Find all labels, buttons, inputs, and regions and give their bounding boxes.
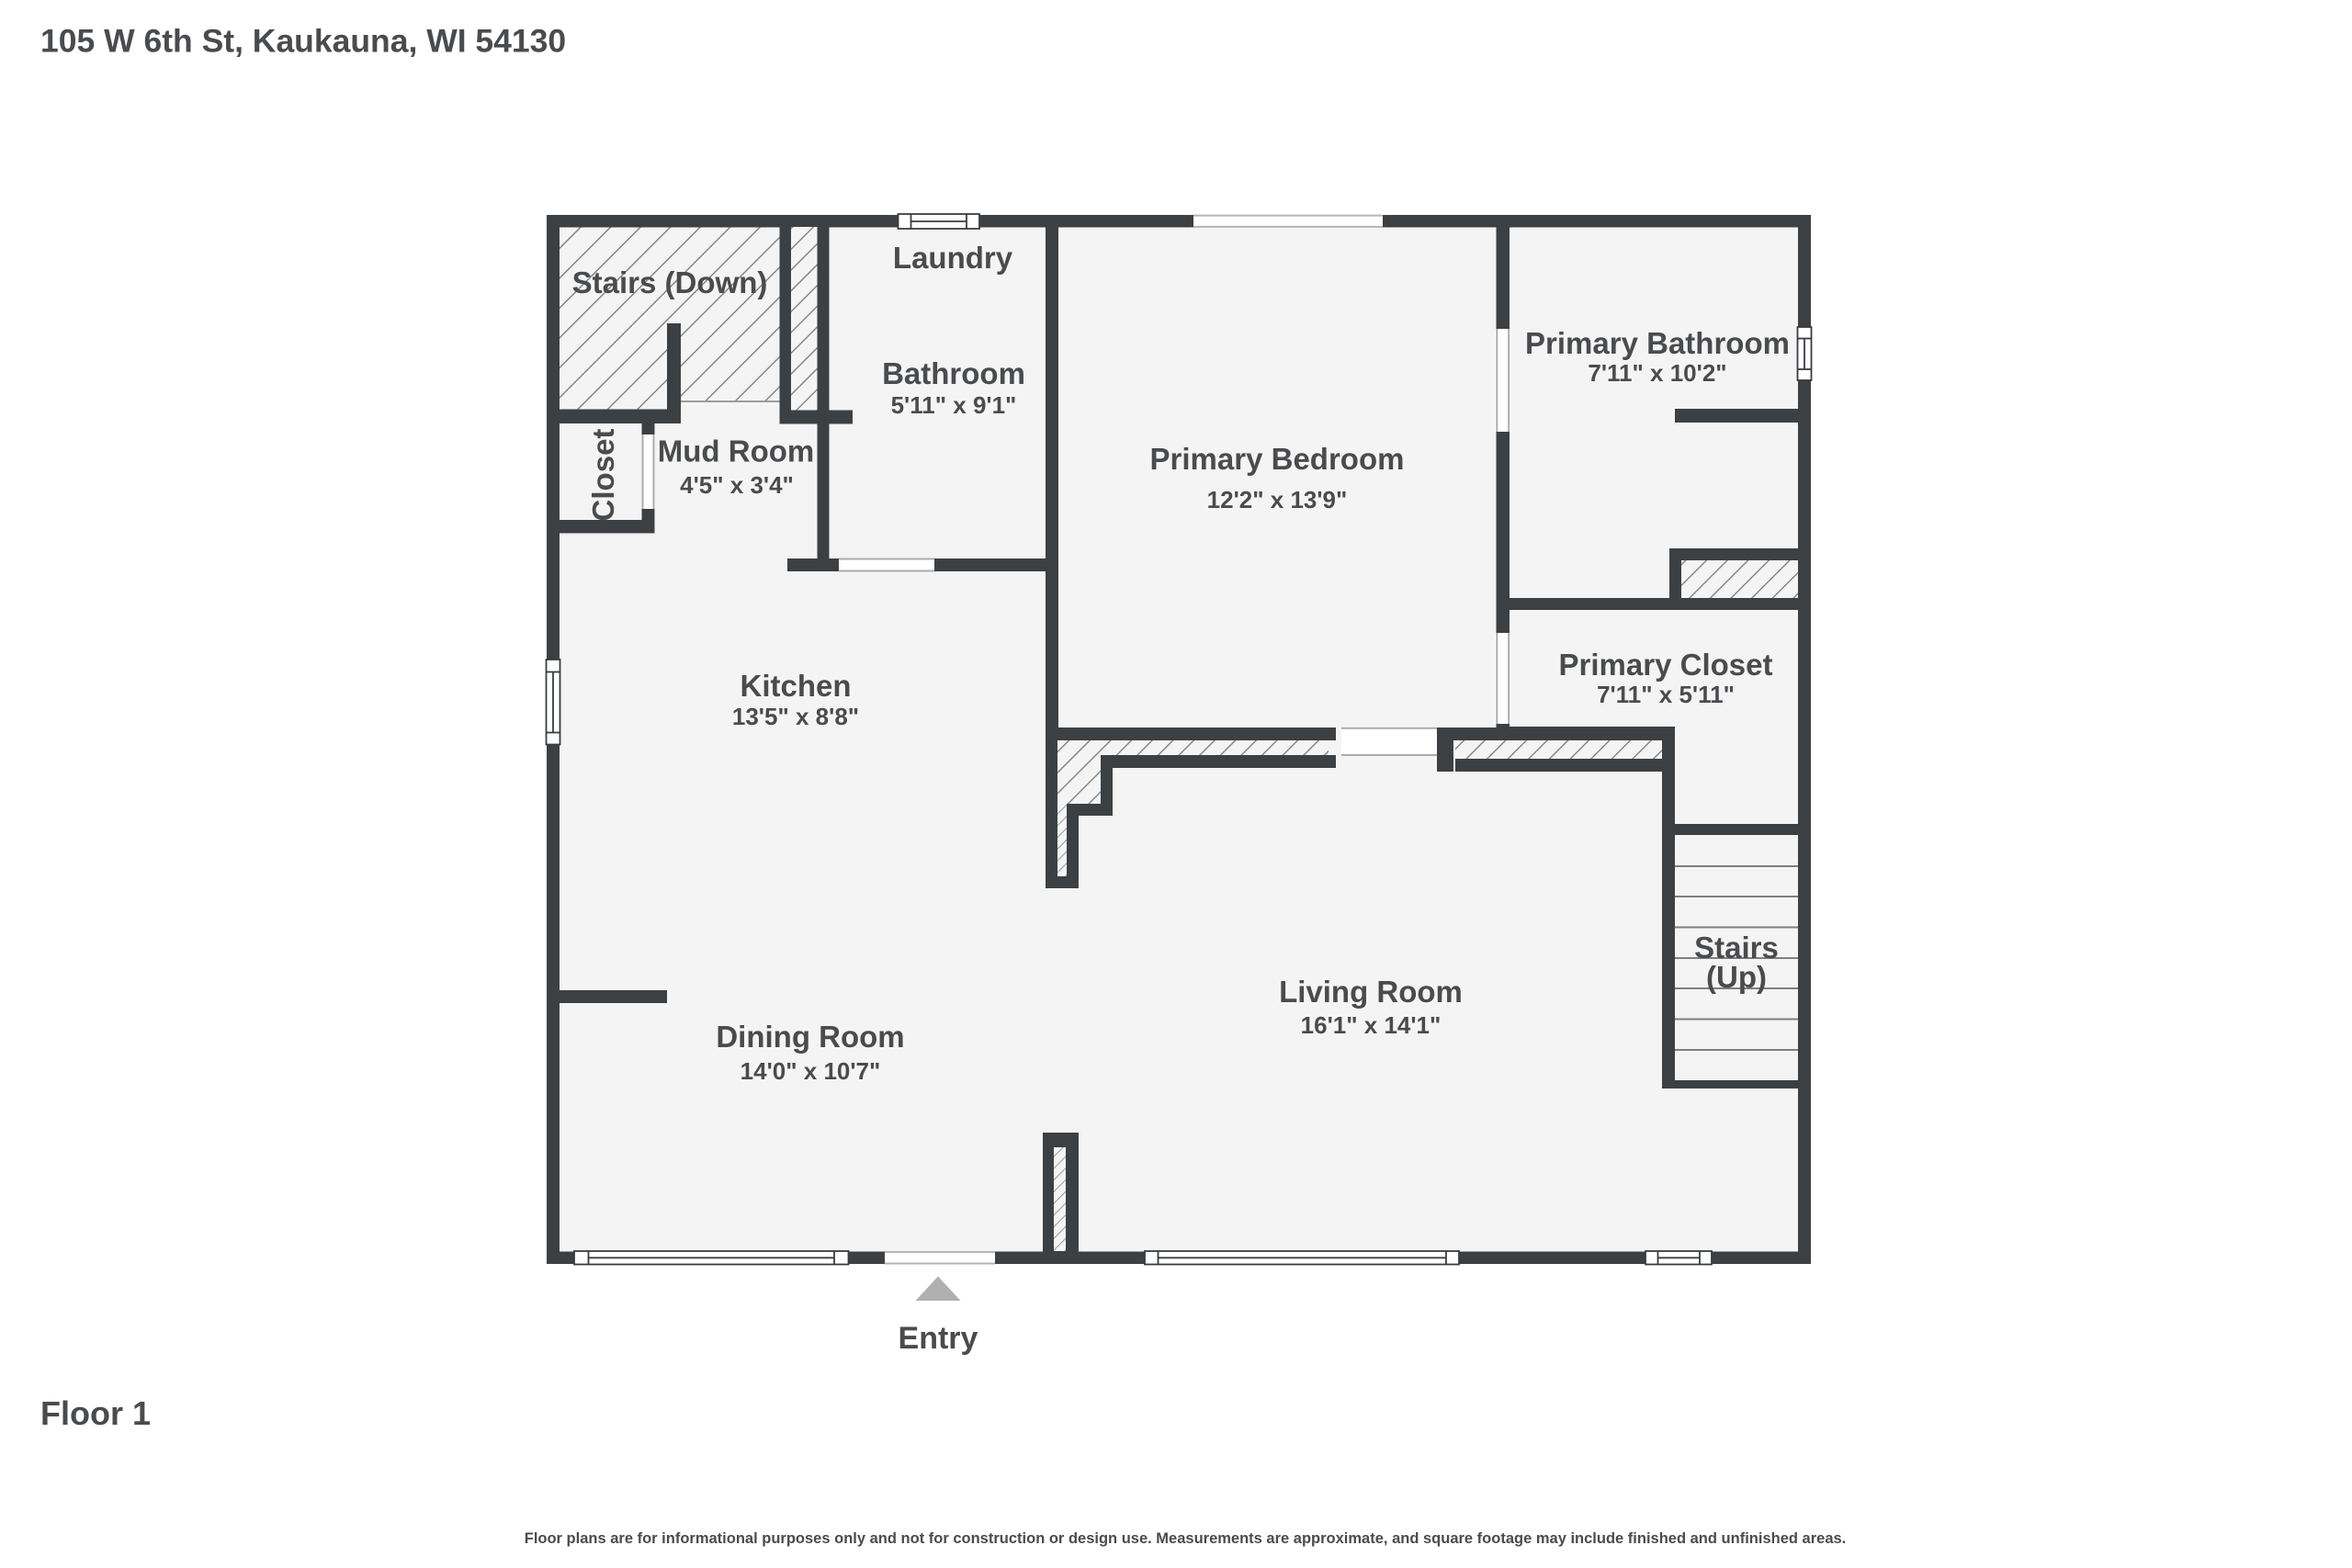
svg-text:16'1" x 14'1": 16'1" x 14'1" [1301,1011,1442,1039]
svg-text:Kitchen: Kitchen [740,669,851,703]
svg-text:12'2" x 13'9": 12'2" x 13'9" [1207,486,1348,513]
svg-text:Floor 1: Floor 1 [40,1394,151,1432]
svg-text:Floor plans are for informatio: Floor plans are for informational purpos… [525,1530,1847,1547]
svg-text:4'5" x 3'4": 4'5" x 3'4" [680,471,794,499]
svg-text:7'11" x 5'11": 7'11" x 5'11" [1597,681,1735,708]
svg-text:Entry: Entry [899,1321,978,1356]
svg-text:Primary Bedroom: Primary Bedroom [1150,442,1405,476]
svg-text:7'11" x 10'2": 7'11" x 10'2" [1588,359,1726,387]
svg-text:13'5" x 8'8": 13'5" x 8'8" [732,703,859,730]
svg-text:Bathroom: Bathroom [882,356,1025,390]
svg-text:105 W 6th St, Kaukauna, WI 541: 105 W 6th St, Kaukauna, WI 54130 [40,23,566,60]
svg-text:Primary Closet: Primary Closet [1559,648,1773,682]
svg-text:Living Room: Living Room [1279,975,1463,1009]
svg-text:Closet: Closet [586,429,620,522]
svg-text:Dining Room: Dining Room [716,1020,904,1054]
svg-text:Mud Room: Mud Room [658,434,814,468]
svg-text:Primary Bathroom: Primary Bathroom [1525,326,1790,360]
svg-text:Laundry: Laundry [893,241,1013,275]
svg-text:14'0" x 10'7": 14'0" x 10'7" [741,1057,881,1085]
svg-text:Stairs (Down): Stairs (Down) [572,265,768,299]
svg-text:5'11" x 9'1": 5'11" x 9'1" [891,391,1017,419]
svg-text:(Up): (Up) [1706,960,1767,994]
